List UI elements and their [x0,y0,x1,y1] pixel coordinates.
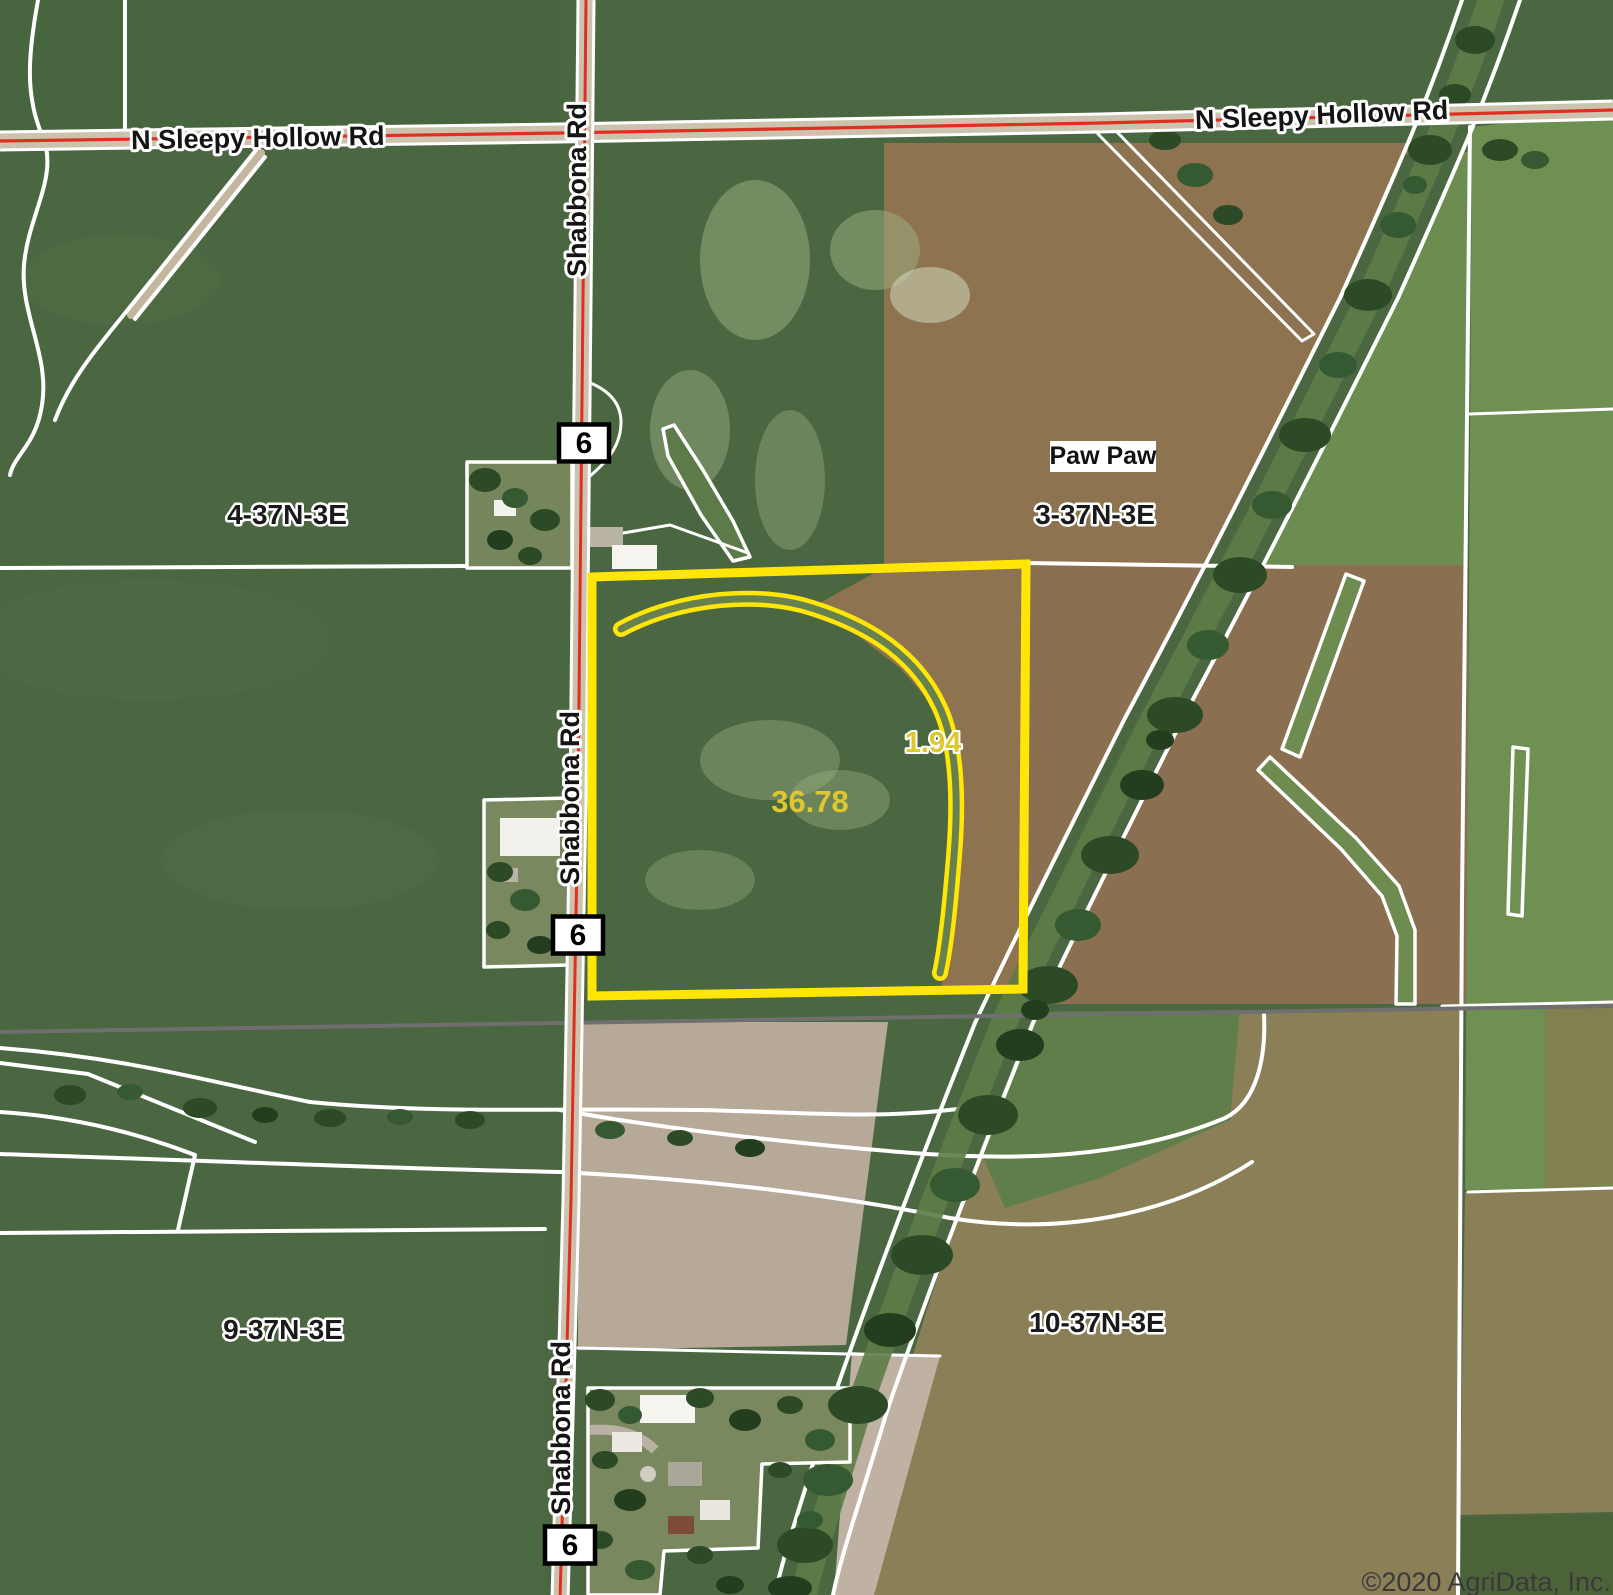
tree [777,1396,803,1414]
tree [618,1406,642,1424]
tree [592,1451,618,1469]
tree [530,509,560,531]
section-label-9-37N-3E: 9-37N-3E [223,1314,343,1345]
tree [486,921,510,939]
pale-streak [645,850,755,910]
tree [1147,697,1203,733]
tree [117,1084,143,1100]
road-label-shabbona-mid: Shabbona Rd [555,711,585,885]
copyright-attribution: ©2020 AgriData, Inc. [1361,1567,1611,1595]
tree [1408,135,1452,165]
route-shield-number: 6 [562,1529,579,1562]
section-label-3-37N-3E: 3-37N-3E [1035,499,1155,530]
tree [1380,212,1416,238]
route-6-shield-south: 6 [545,1527,595,1564]
tree [502,488,528,508]
tree [768,1462,792,1478]
tree [1252,491,1292,519]
road-label-sleepy-hollow-west: N Sleepy Hollow Rd [131,121,385,155]
building [590,527,623,547]
tree [455,1111,485,1129]
tree [1149,130,1181,150]
tree [595,1121,625,1139]
aerial-map-view: N Sleepy Hollow Rd N Sleepy Hollow Rd Sh… [0,0,1613,1595]
tree [716,1576,744,1594]
map-canvas[interactable]: N Sleepy Hollow Rd N Sleepy Hollow Rd Sh… [0,0,1613,1595]
tree [729,1409,761,1431]
tree [614,1489,646,1511]
road-label-shabbona-south: Shabbona Rd [546,1341,576,1515]
section-label-10-37N-3E: 10-37N-3E [1029,1307,1164,1338]
building [668,1462,702,1486]
tree [1319,352,1357,378]
field-streak [160,810,440,910]
tree [687,1546,713,1564]
tree [805,1429,835,1451]
tree [797,1511,823,1529]
tree [828,1386,888,1424]
tree [54,1085,86,1105]
tree [777,1527,833,1563]
tree [1213,205,1243,225]
field-top-left [0,0,560,135]
tree [686,1388,714,1408]
building [612,1432,642,1452]
silo [640,1466,656,1482]
route-6-shield-mid: 6 [553,917,603,954]
tree [1213,557,1267,593]
route-shield-number: 6 [570,919,587,952]
tree [487,862,513,882]
tree [1187,630,1229,660]
tree [527,936,553,954]
tree [930,1168,980,1202]
tree [1279,418,1331,452]
field-olive-southeast [1460,1188,1613,1515]
tree [1482,139,1518,161]
tree [183,1098,217,1118]
tree [958,1095,1018,1135]
building [500,818,560,856]
tree [667,1130,693,1146]
tree [735,1139,765,1157]
tree [487,530,513,550]
tree [585,1389,615,1411]
tree [1120,770,1164,800]
building [612,545,657,569]
tree [891,1235,953,1275]
tree [387,1109,413,1125]
tree [625,1560,655,1580]
tree [1177,163,1213,187]
field-bottom-left [0,1236,545,1595]
tree [1081,836,1139,874]
road-label-shabbona-north: Shabbona Rd [562,103,592,277]
tree [518,547,542,565]
tree [1146,730,1174,750]
field-brown-right-edge [1545,1003,1613,1188]
route-6-shield-north: 6 [559,425,609,462]
tree [864,1313,916,1347]
tree [314,1109,346,1127]
tree [1403,176,1427,194]
tree [996,1029,1044,1061]
tree [1055,909,1101,941]
tree [1021,1000,1049,1020]
section-label-4-37N-3E: 4-37N-3E [227,499,347,530]
pale-streak [890,267,970,323]
tree [510,889,540,911]
building [700,1500,730,1520]
tree [469,468,501,492]
section-line-west [0,566,467,568]
tree [252,1107,278,1123]
tree [1344,279,1392,311]
building [668,1516,694,1534]
pale-streak [755,410,825,550]
town-label-paw-paw: Paw Paw [1050,442,1158,470]
tree [1455,26,1495,54]
parcel-acreage-waterway: 1.94 [905,727,961,759]
route-shield-number: 6 [576,427,593,460]
tree [1521,151,1549,169]
tree [803,1464,853,1496]
pale-streak [700,180,810,340]
parcel-acreage-main: 36.78 [771,784,849,819]
